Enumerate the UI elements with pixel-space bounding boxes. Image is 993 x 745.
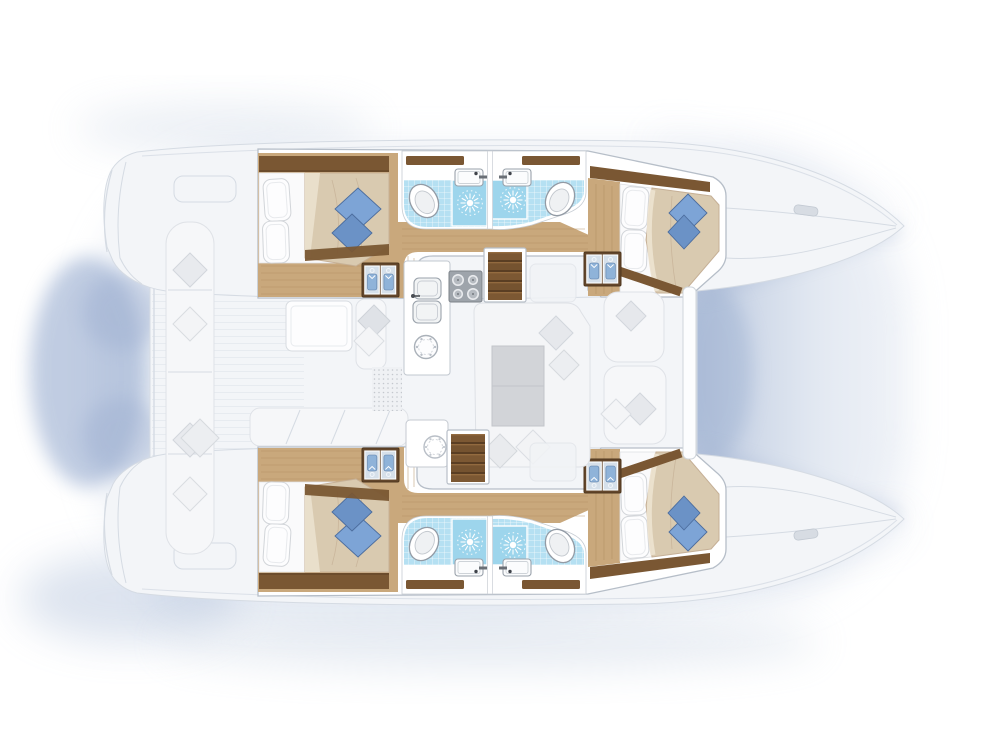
saloon-forward-wall	[683, 287, 696, 459]
round-hatch-icon	[424, 436, 446, 458]
cockpit-aft-bench	[250, 408, 408, 446]
heads-divider-wall	[488, 151, 493, 229]
washbasin-icon	[455, 169, 487, 186]
aft-cabin	[258, 153, 399, 297]
utility-cabinet	[406, 420, 448, 467]
double-bed	[259, 173, 389, 266]
catamaran-floor-plan: Catamaran yacht interior floor plan	[0, 0, 993, 745]
stove-icon	[449, 271, 482, 302]
pillow	[262, 221, 289, 264]
port-companionway-steps	[484, 248, 526, 302]
wardrobe-hanging-clothes-icon	[584, 252, 621, 286]
starboard-hull	[104, 446, 904, 605]
starboard-companionway-steps	[447, 430, 489, 484]
vanity-shelf	[522, 156, 580, 165]
vanity-shelf	[406, 156, 464, 165]
haze-bottom	[160, 614, 820, 670]
catamaran-floor-plan-page: Catamaran yacht interior floor plan	[0, 0, 993, 745]
pillow	[263, 178, 292, 222]
wardrobe-hanging-clothes-icon	[362, 263, 399, 297]
cockpit-table	[286, 301, 352, 351]
pillow	[621, 186, 650, 230]
deck-mat-dots	[372, 367, 402, 411]
nav-seat-ghost	[530, 443, 576, 481]
nav-seat-ghost	[530, 264, 576, 302]
pillow	[620, 230, 647, 273]
round-hatch-icon	[415, 336, 438, 359]
headboard-shelf	[259, 156, 389, 172]
washbasin-icon	[499, 169, 531, 186]
